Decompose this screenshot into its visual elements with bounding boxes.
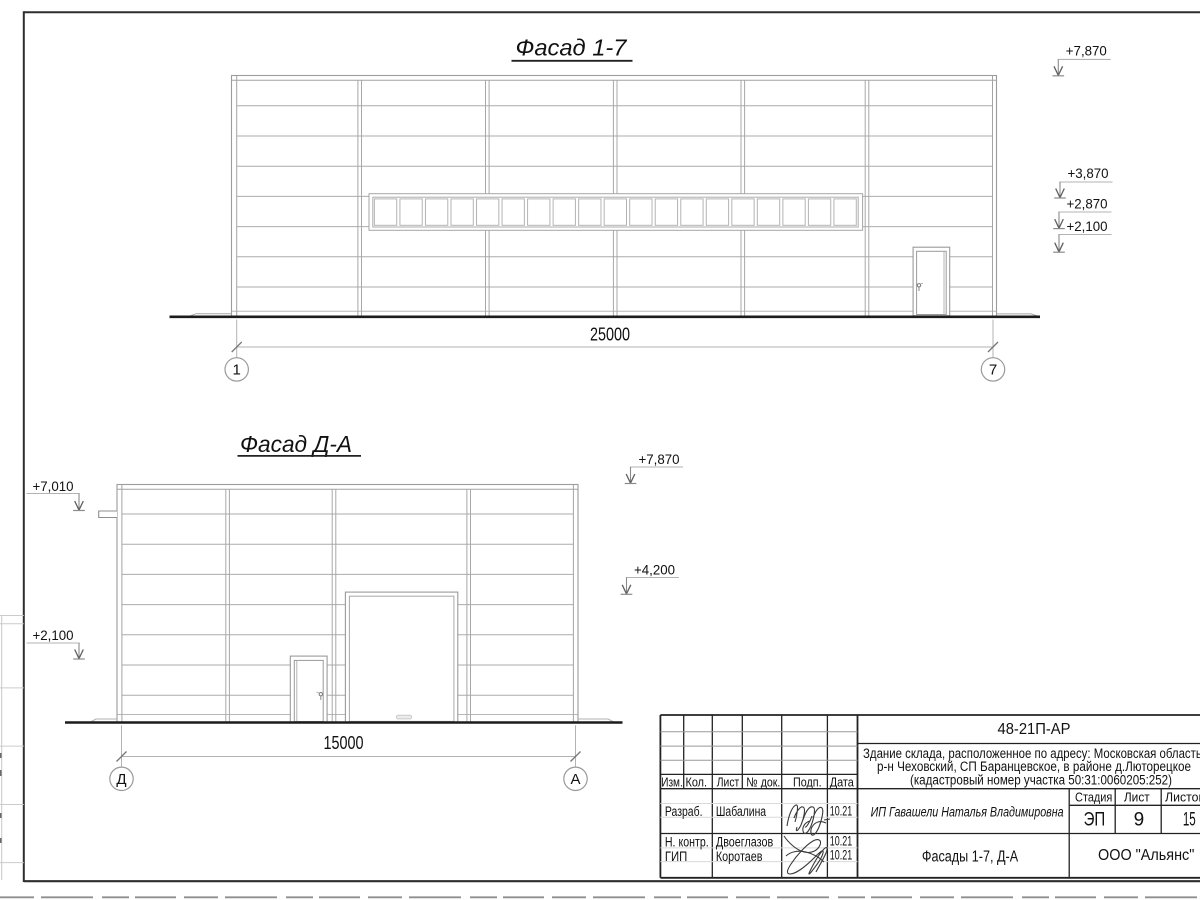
svg-text:25000: 25000 xyxy=(590,325,630,345)
svg-text:1: 1 xyxy=(233,362,241,379)
svg-text:10.21: 10.21 xyxy=(830,804,852,819)
svg-text:+2,100: +2,100 xyxy=(33,627,74,643)
svg-text:Листов: Листов xyxy=(1165,790,1200,805)
svg-text:Двоеглазов: Двоеглазов xyxy=(716,835,773,850)
svg-text:Подп.: Подп. xyxy=(793,774,822,789)
svg-text:Лист: Лист xyxy=(1124,790,1150,805)
svg-text:+7,870: +7,870 xyxy=(1066,43,1107,59)
svg-text:А: А xyxy=(570,771,580,788)
svg-text:Дата: Дата xyxy=(830,774,855,789)
svg-text:+2,100: +2,100 xyxy=(1067,218,1108,234)
svg-text:+4,200: +4,200 xyxy=(634,562,675,578)
svg-text:ООО "Альянс": ООО "Альянс" xyxy=(1098,847,1194,864)
svg-text:10.21: 10.21 xyxy=(830,833,852,848)
svg-text:Разраб.: Разраб. xyxy=(665,804,703,819)
svg-text:48-21П-АР: 48-21П-АР xyxy=(998,721,1071,738)
svg-text:Стадия: Стадия xyxy=(1075,790,1112,805)
svg-text:Д: Д xyxy=(116,771,126,788)
svg-text:+7,870: +7,870 xyxy=(639,451,680,467)
svg-text:Н. контр.: Н. контр. xyxy=(665,835,709,850)
svg-text:15000: 15000 xyxy=(324,733,364,753)
svg-text:+7,010: +7,010 xyxy=(33,478,74,494)
svg-text:(кадастровый номер участка 50:: (кадастровый номер участка 50:31:0060205… xyxy=(910,772,1172,787)
svg-text:Коротаев: Коротаев xyxy=(716,849,763,864)
svg-text:+3,870: +3,870 xyxy=(1068,165,1109,181)
svg-text:10.21: 10.21 xyxy=(830,848,852,863)
svg-text:ГИП: ГИП xyxy=(665,849,687,864)
svg-text:15: 15 xyxy=(1183,809,1196,830)
svg-text:ЭП: ЭП xyxy=(1084,809,1106,830)
svg-text:ИП Гавашели Наталья Владимиров: ИП Гавашели Наталья Владимировна xyxy=(871,804,1064,819)
svg-text:+2,870: +2,870 xyxy=(1067,196,1108,212)
svg-text:Шабалина: Шабалина xyxy=(716,804,767,819)
svg-text:Изм.: Изм. xyxy=(661,774,683,789)
svg-text:Фасад Д-А: Фасад Д-А xyxy=(240,431,352,457)
svg-text:9: 9 xyxy=(1134,809,1145,830)
svg-text:Лист: Лист xyxy=(717,774,739,789)
svg-text:Фасады 1-7, Д-А: Фасады 1-7, Д-А xyxy=(922,848,1019,865)
svg-text:7: 7 xyxy=(989,362,997,379)
svg-text:№ док.: № док. xyxy=(746,774,780,789)
svg-text:Фасад 1-7: Фасад 1-7 xyxy=(516,34,628,60)
svg-text:Кол.: Кол. xyxy=(686,774,708,789)
